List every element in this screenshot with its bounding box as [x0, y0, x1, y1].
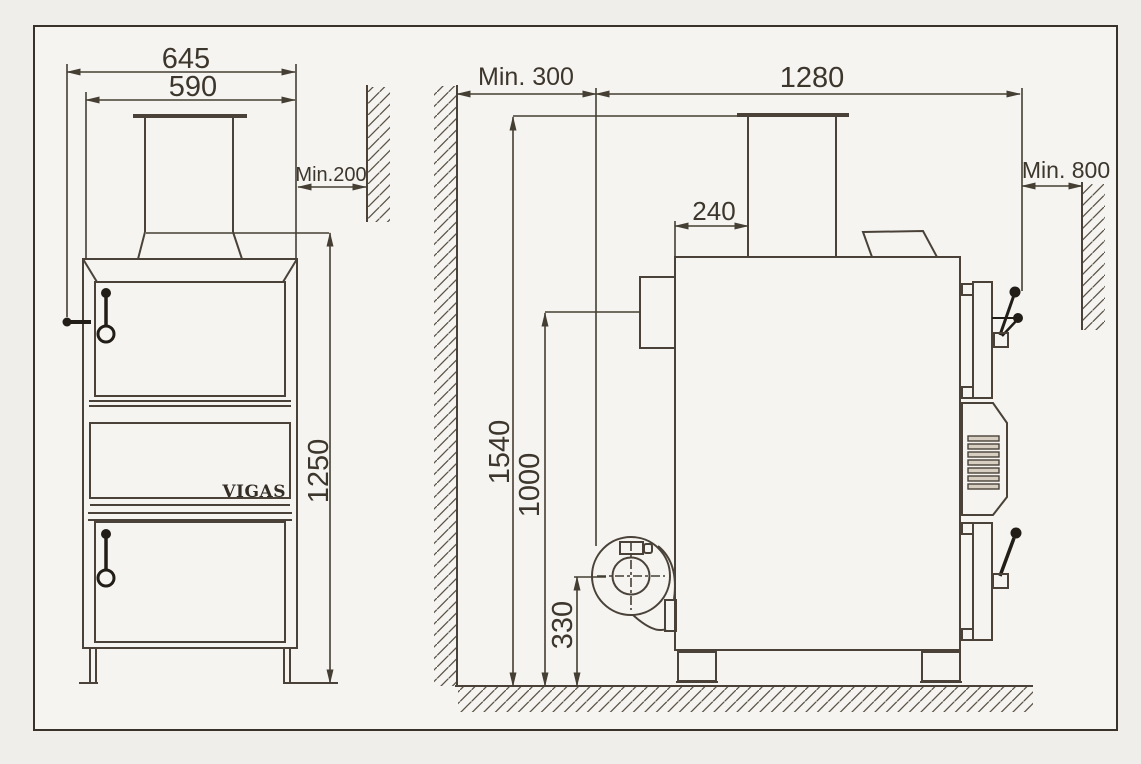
dim-wall-clearance: Min.200: [295, 164, 366, 186]
dim-height-body: 1250: [303, 439, 335, 504]
rear-wall-hatching: [434, 86, 456, 686]
vent-slats: [968, 436, 999, 489]
brand-logo: VIGAS: [221, 482, 286, 502]
dim-height-flue-outlet: 1000: [514, 453, 546, 518]
dim-width-body: 590: [169, 71, 217, 103]
dim-chimney-offset: 240: [692, 196, 735, 226]
front-view-wall: [367, 85, 390, 222]
dim-clearance-front: Min. 800: [1022, 157, 1110, 183]
dim-height-chimney: 1540: [484, 420, 516, 485]
front-wall-hatching: [1083, 184, 1105, 330]
floor-hatching: [458, 687, 1033, 712]
wall-hatching: [368, 87, 390, 222]
dim-fan-height: 330: [547, 601, 579, 649]
boiler-installation-drawing: VIGAS 645 590 Min.200 1250: [0, 0, 1141, 764]
dim-clearance-rear: Min. 300: [478, 63, 574, 91]
drawing-canvas: VIGAS 645 590 Min.200 1250: [0, 0, 1141, 764]
dim-depth-overall: 1280: [780, 62, 845, 94]
